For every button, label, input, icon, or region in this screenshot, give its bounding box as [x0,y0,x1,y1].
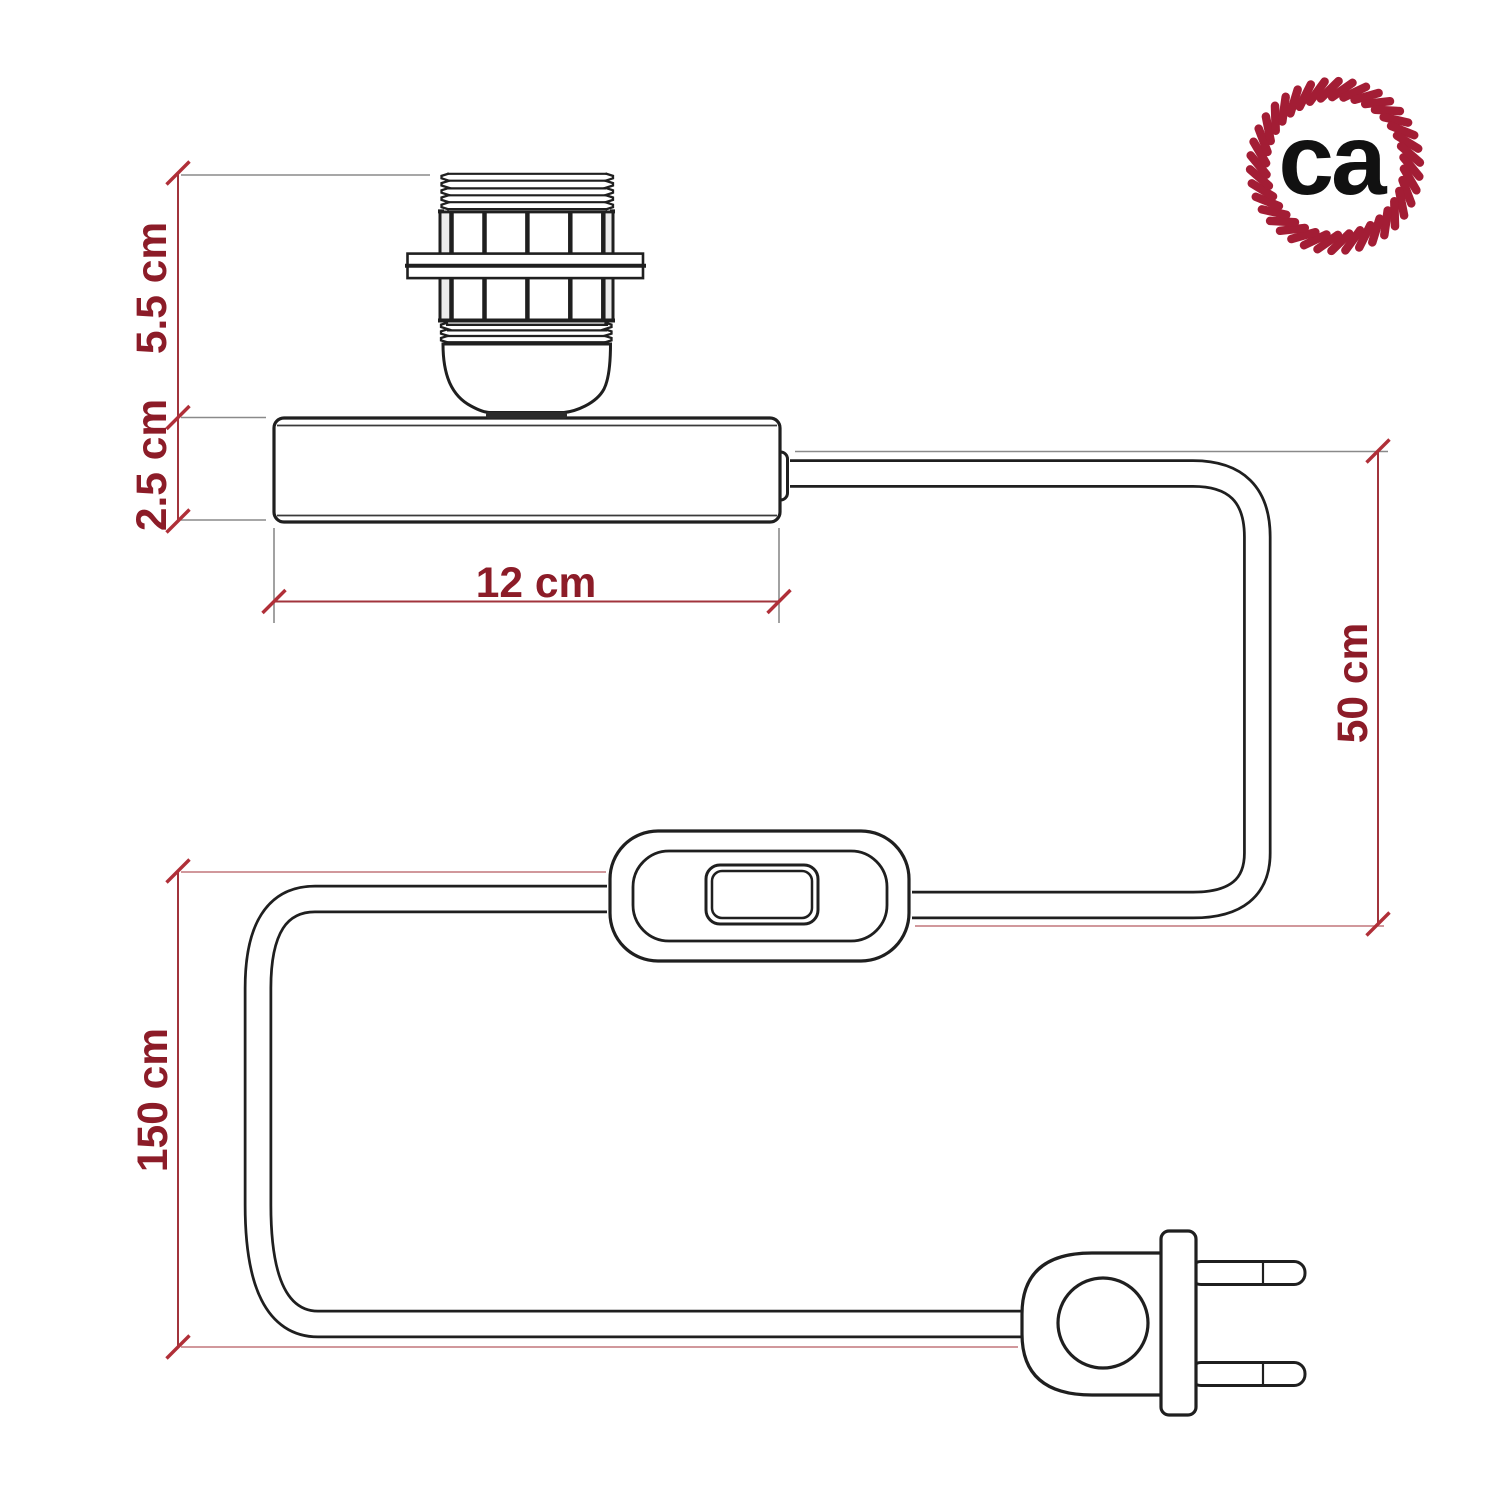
svg-text:2.5 cm: 2.5 cm [129,399,176,531]
svg-text:5.5 cm: 5.5 cm [129,222,176,354]
svg-text:ca: ca [1278,104,1388,216]
svg-text:150 cm: 150 cm [130,1028,177,1172]
svg-text:12 cm: 12 cm [476,560,597,607]
svg-text:50 cm: 50 cm [1330,623,1377,744]
